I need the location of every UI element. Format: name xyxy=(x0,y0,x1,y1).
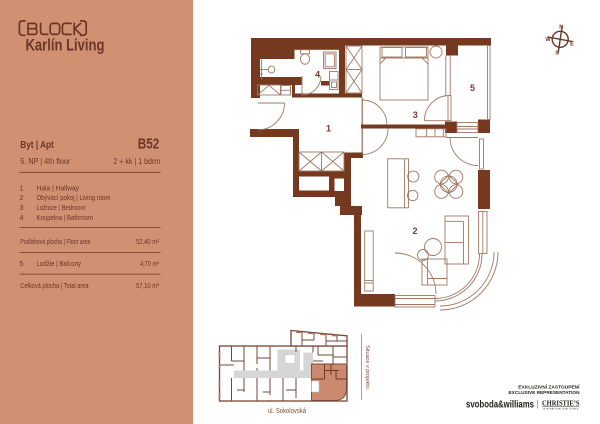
svg-text:Podlahová plocha | Floor area: Podlahová plocha | Floor area xyxy=(20,237,90,246)
svg-text:Obývací pokoj | Living room: Obývací pokoj | Living room xyxy=(37,193,111,202)
svg-text:4: 4 xyxy=(315,70,320,80)
svg-text:N: N xyxy=(559,25,563,31)
svg-text:3: 3 xyxy=(20,203,24,212)
svg-text:svoboda&williams: svoboda&williams xyxy=(466,398,534,410)
svg-text:Karlín Living: Karlín Living xyxy=(26,35,105,54)
svg-text:B52: B52 xyxy=(138,137,160,153)
svg-text:Lodžie | Balcony: Lodžie | Balcony xyxy=(37,259,82,268)
svg-text:ul. Sokolovská: ul. Sokolovská xyxy=(268,408,306,415)
svg-text:52,40 m²: 52,40 m² xyxy=(136,237,159,246)
svg-text:1: 1 xyxy=(20,183,24,192)
svg-text:4,70 m²: 4,70 m² xyxy=(140,259,159,268)
svg-text:Celková plocha | Total area: Celková plocha | Total area xyxy=(20,281,88,290)
svg-text:W: W xyxy=(545,37,551,43)
svg-text:INTERNATIONAL REAL ESTATE: INTERNATIONAL REAL ESTATE xyxy=(543,408,579,411)
svg-text:S: S xyxy=(555,50,559,56)
svg-text:1: 1 xyxy=(326,124,331,134)
svg-text:5. NP | 4th floor: 5. NP | 4th floor xyxy=(20,156,70,166)
svg-text:2: 2 xyxy=(20,193,24,202)
svg-text:Hala | Hallway: Hala | Hallway xyxy=(37,183,80,192)
svg-text:EXCLUSIVE REPRESENTATION: EXCLUSIVE REPRESENTATION xyxy=(509,390,580,395)
svg-text:E: E xyxy=(570,41,574,47)
svg-text:Situace v projektu: Situace v projektu xyxy=(364,345,370,389)
svg-text:EXKLUZIVNÍ ZASTOUPENÍ: EXKLUZIVNÍ ZASTOUPENÍ xyxy=(518,384,580,389)
svg-text:Koupelna | Bathroom: Koupelna | Bathroom xyxy=(37,213,94,222)
svg-text:|: | xyxy=(537,399,539,409)
svg-text:Byt | Apt: Byt | Apt xyxy=(20,140,54,151)
svg-text:Ložnice | Bedroom: Ložnice | Bedroom xyxy=(37,203,86,212)
svg-text:3: 3 xyxy=(413,110,418,120)
svg-text:5: 5 xyxy=(470,83,475,93)
svg-text:57,10 m²: 57,10 m² xyxy=(136,281,159,290)
svg-text:4: 4 xyxy=(20,213,24,222)
svg-text:5: 5 xyxy=(20,259,24,268)
svg-text:2 + kk | 1 bdrm: 2 + kk | 1 bdrm xyxy=(113,156,160,166)
svg-text:2: 2 xyxy=(412,226,417,236)
svg-text:CHRISTIE’S: CHRISTIE’S xyxy=(542,399,580,408)
